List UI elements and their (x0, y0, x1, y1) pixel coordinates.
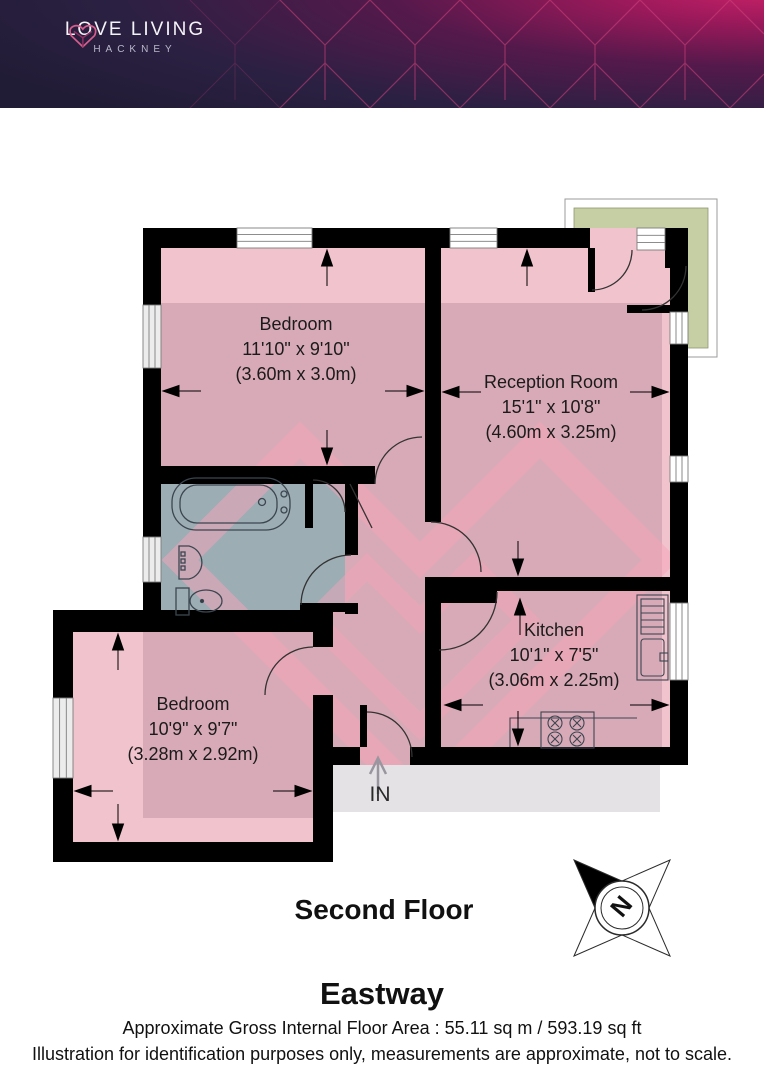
property-name: Eastway (320, 976, 444, 1012)
room-size-metric: (4.60m x 3.25m) (484, 420, 618, 445)
room-size-imperial: 10'9" x 9'7" (127, 717, 258, 742)
room-label-bedroom-2: Bedroom 10'9" x 9'7" (3.28m x 2.92m) (127, 692, 258, 767)
room-label-bedroom-1: Bedroom 11'10" x 9'10" (3.60m x 3.0m) (235, 312, 356, 387)
room-size-metric: (3.60m x 3.0m) (235, 362, 356, 387)
room-name: Kitchen (488, 618, 619, 643)
room-label-kitchen: Kitchen 10'1" x 7'5" (3.06m x 2.25m) (488, 618, 619, 693)
room-name: Bedroom (127, 692, 258, 717)
room-size-imperial: 10'1" x 7'5" (488, 643, 619, 668)
disclaimer-text: Illustration for identification purposes… (32, 1044, 732, 1065)
floor-title: Second Floor (295, 894, 474, 926)
entrance-label: IN (370, 783, 391, 807)
room-name: Reception Room (484, 370, 618, 395)
room-size-metric: (3.28m x 2.92m) (127, 742, 258, 767)
room-size-metric: (3.06m x 2.25m) (488, 668, 619, 693)
room-size-imperial: 15'1" x 10'8" (484, 395, 618, 420)
floor-area-text: Approximate Gross Internal Floor Area : … (123, 1018, 642, 1039)
room-size-imperial: 11'10" x 9'10" (235, 337, 356, 362)
floorplan-page: LOVE LIVING HACKNEY (0, 0, 764, 1080)
room-label-reception: Reception Room 15'1" x 10'8" (4.60m x 3.… (484, 370, 618, 445)
room-name: Bedroom (235, 312, 356, 337)
